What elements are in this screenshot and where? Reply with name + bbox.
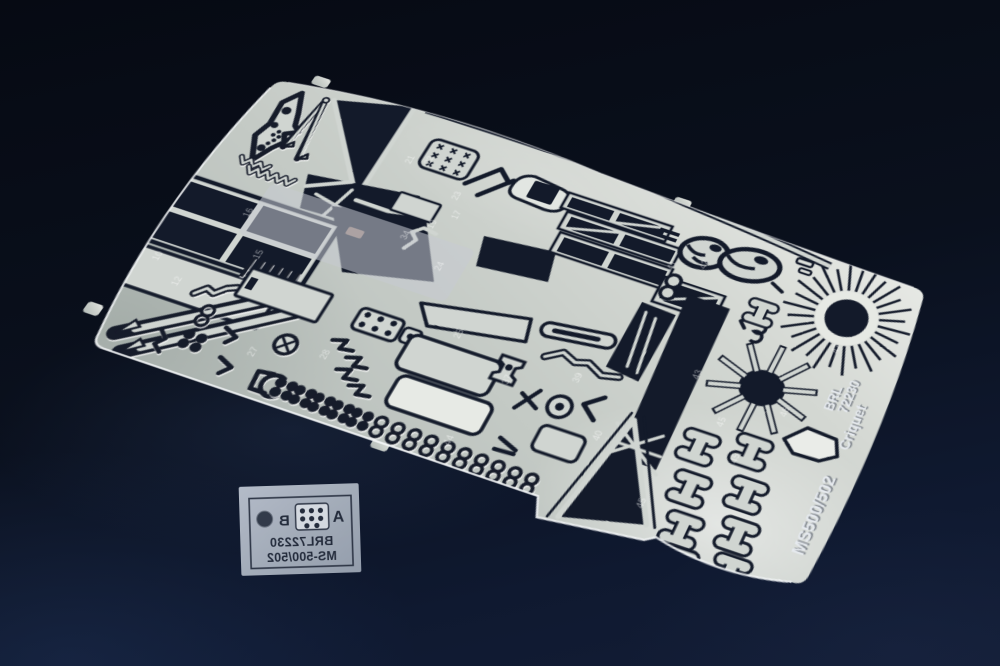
svg-text:BRL72230: BRL72230 xyxy=(269,534,333,550)
svg-text:MS-500/502: MS-500/502 xyxy=(267,549,338,565)
svg-text:B: B xyxy=(278,512,290,529)
svg-text:A: A xyxy=(332,509,345,526)
